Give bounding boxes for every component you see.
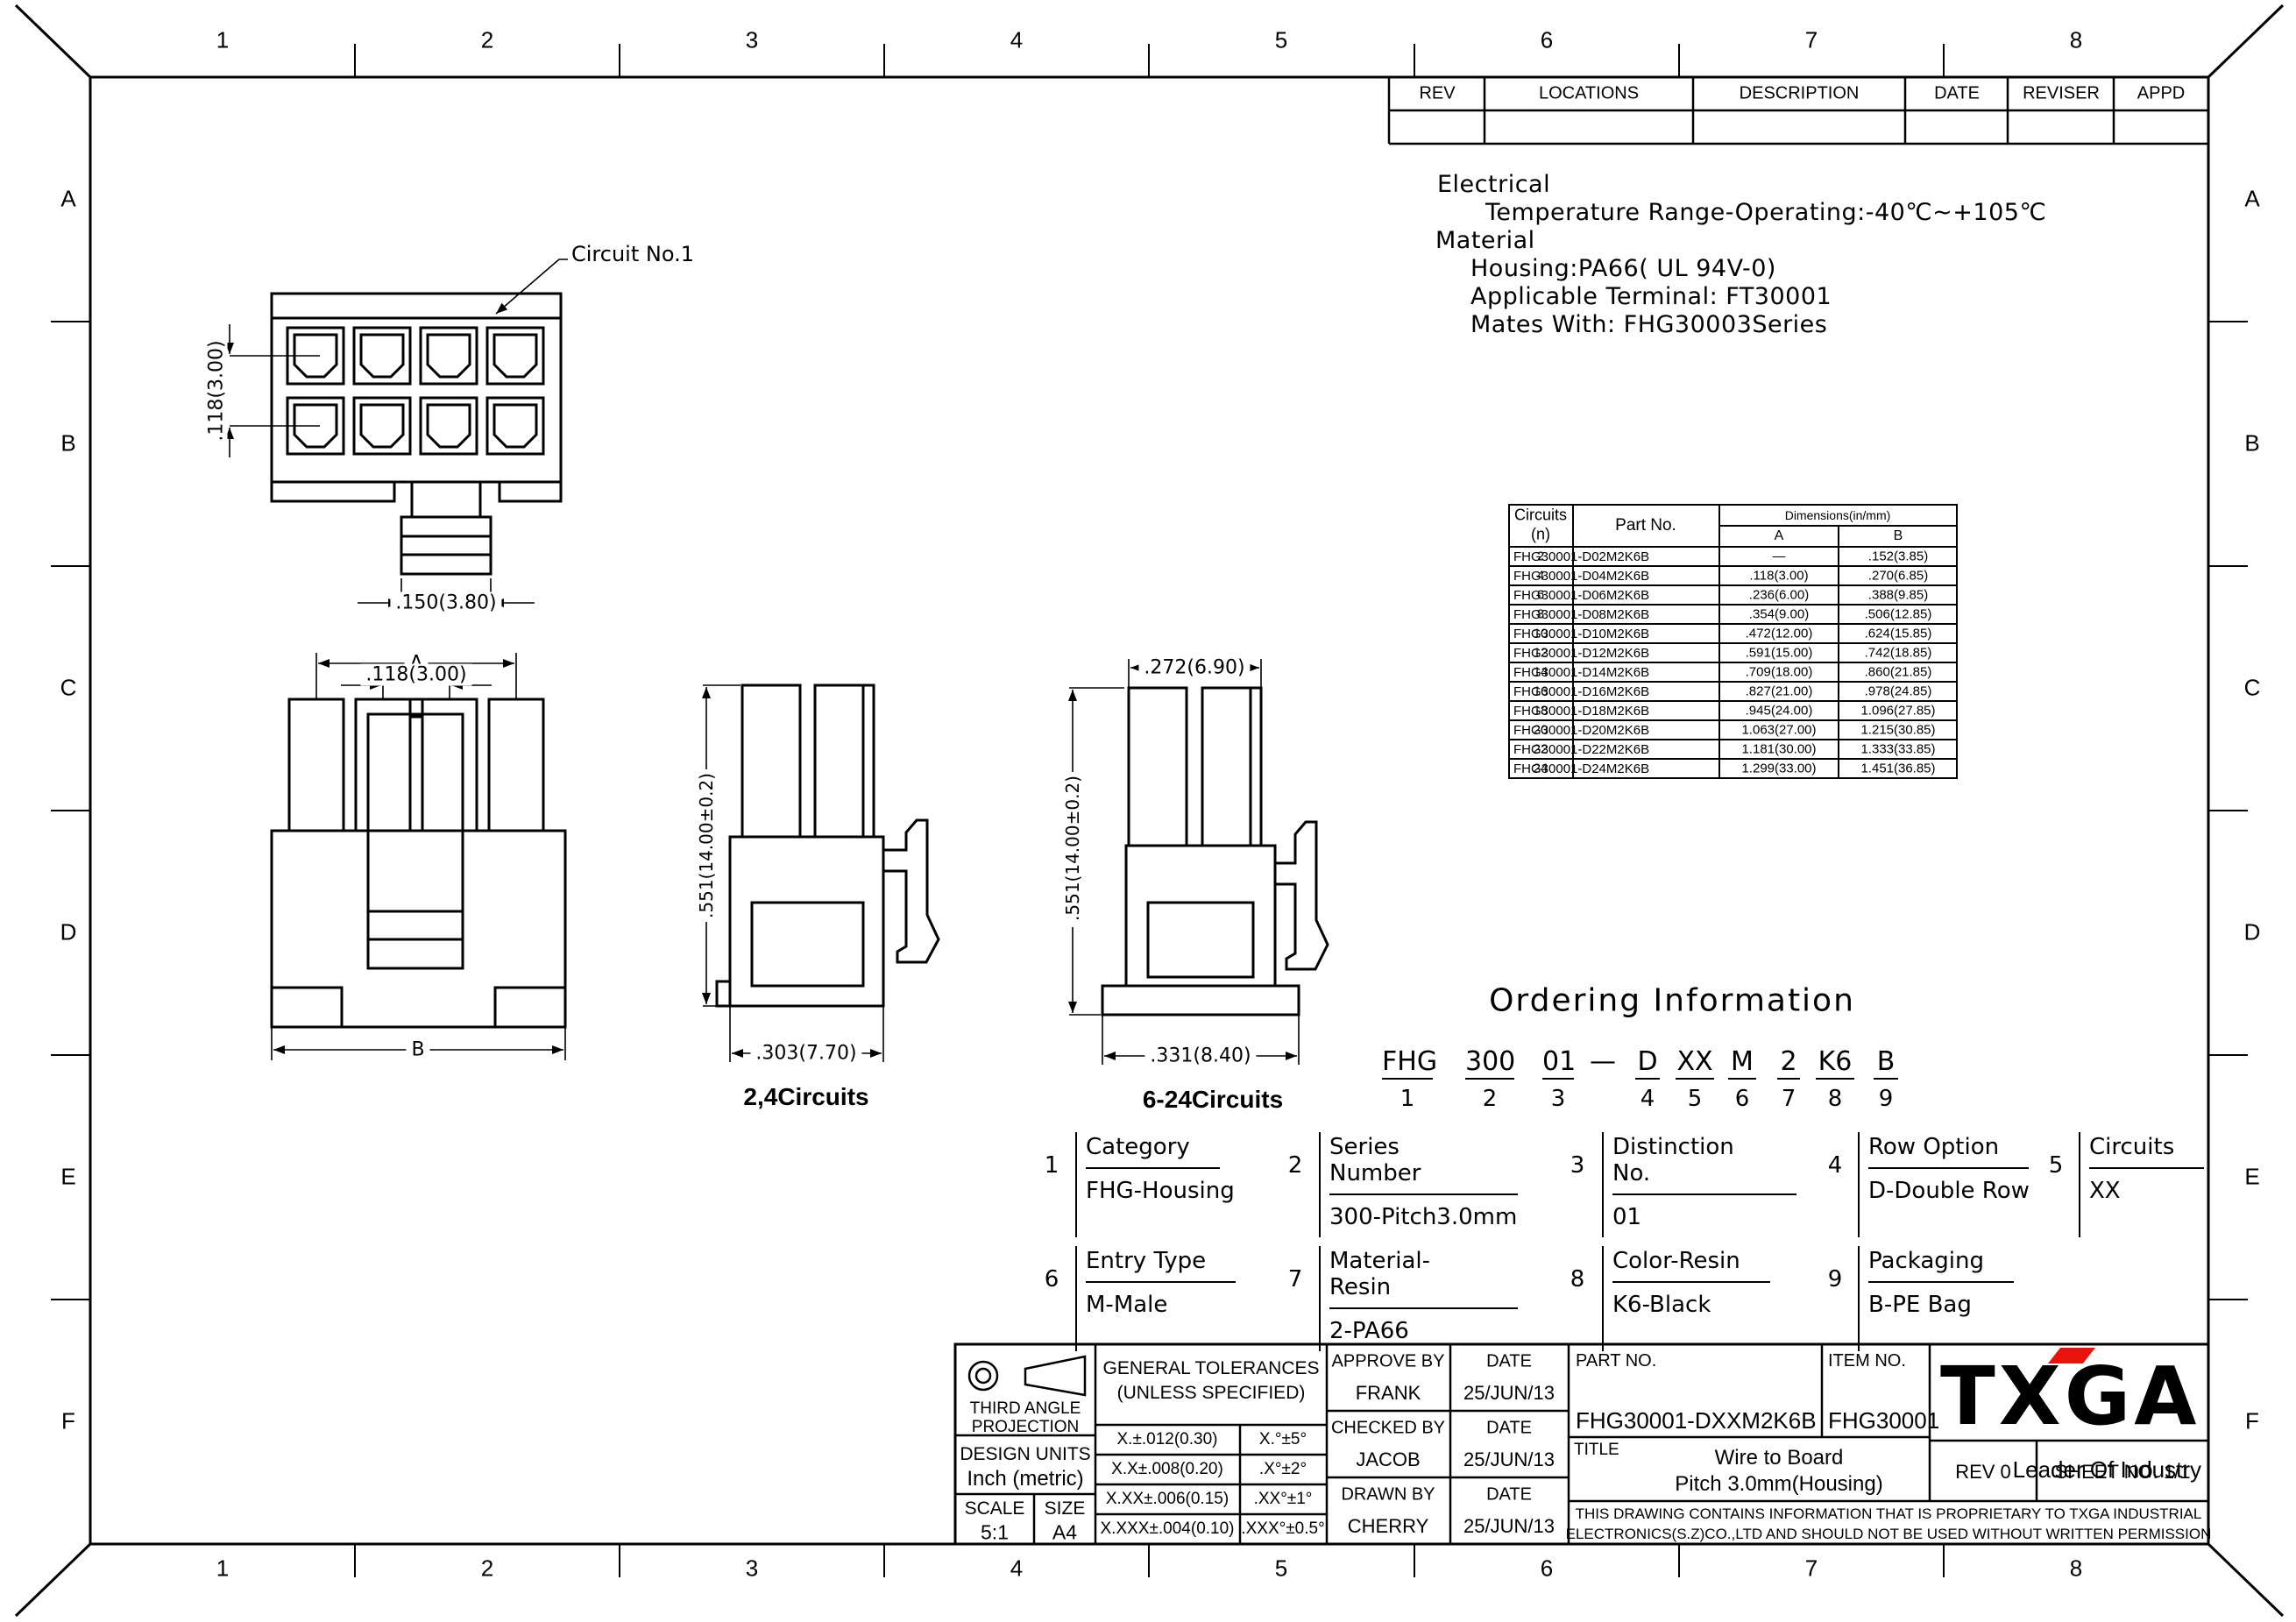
code-dash: — xyxy=(1590,1046,1616,1078)
ordering-item-label: Row Option xyxy=(1868,1132,2029,1169)
parts-cell-part: FHG30001-D12M2K6B xyxy=(1513,646,1649,661)
rev-header: REV xyxy=(1419,84,1455,104)
txga-slogan: Leader Of Industry xyxy=(1998,1456,2201,1484)
ordering-item-value: 300-Pitch3.0mm xyxy=(1329,1195,1518,1230)
txga-logo: TXGA xyxy=(1940,1356,2200,1437)
grid-row-label: F xyxy=(2245,1408,2259,1435)
parts-col-dims: Dimensions(in/mm) xyxy=(1785,508,1891,522)
parts-cell-part: FHG30001-D02M2K6B xyxy=(1513,549,1649,564)
parts-cell-b: 1.451(36.85) xyxy=(1860,761,1935,776)
parts-cell-part: FHG30001-D22M2K6B xyxy=(1513,742,1649,757)
parts-cell-a: .118(3.00) xyxy=(1749,569,1808,584)
grid-column-label: 2 xyxy=(481,1555,493,1583)
tolerance-angular: .XX°±1° xyxy=(1254,1490,1313,1509)
code-segment: XX xyxy=(1676,1046,1714,1080)
tolerance-angular: .X°±2° xyxy=(1259,1460,1307,1479)
ordering-item-no: 4 xyxy=(1828,1152,1843,1179)
face-latch-dim: .150(3.80) xyxy=(390,592,501,614)
tolerances-title: GENERAL TOLERANCES xyxy=(1102,1358,1319,1379)
ordering-item-label: Entry Type xyxy=(1086,1246,1236,1283)
design-units-label: DESIGN UNITS xyxy=(960,1444,1090,1465)
parts-cell-a: 1.299(33.00) xyxy=(1741,761,1816,776)
notes-electrical-heading: Electrical xyxy=(1437,171,1550,198)
drawn-by-name: CHERRY xyxy=(1348,1515,1429,1538)
item-no-label: ITEM NO. xyxy=(1828,1351,1906,1371)
code-digit: 1 xyxy=(1400,1086,1415,1112)
ordering-item-value: K6-Black xyxy=(1612,1283,1796,1318)
code-segment: 300 xyxy=(1465,1046,1514,1080)
grid-row-label: C xyxy=(2244,675,2261,702)
parts-cell-a: .591(15.00) xyxy=(1746,646,1813,661)
code-segment: K6 xyxy=(1816,1046,1854,1080)
grid-row-label: C xyxy=(60,675,77,702)
code-segment: D xyxy=(1635,1046,1660,1080)
parts-cell-a: 1.181(30.00) xyxy=(1741,742,1816,757)
ordering-item: Color-Resin K6-Black xyxy=(1602,1246,1796,1351)
ordering-item-value: FHG-Housing xyxy=(1086,1169,1239,1204)
date-label: DATE xyxy=(1486,1419,1532,1439)
checked-date: 25/JUN/13 xyxy=(1463,1448,1555,1471)
ordering-item: Packaging B-PE Bag xyxy=(1858,1246,2057,1351)
ordering-item: Category FHG-Housing xyxy=(1075,1132,1239,1237)
front-dim-b: B xyxy=(406,1039,429,1061)
parts-cell-a: .827(21.00) xyxy=(1746,684,1813,699)
grid-column-label: 4 xyxy=(1010,27,1023,54)
parts-col-b: B xyxy=(1894,528,1903,544)
ordering-item-label: Color-Resin xyxy=(1612,1246,1770,1283)
code-digit: 3 xyxy=(1551,1086,1566,1112)
parts-cell-part: FHG30001-D18M2K6B xyxy=(1513,704,1649,719)
parts-cell-b: .506(12.85) xyxy=(1865,607,1932,622)
part-no-label: PART NO. xyxy=(1576,1351,1656,1371)
checked-by-label: CHECKED BY xyxy=(1331,1419,1445,1439)
proprietary-notice-line1: THIS DRAWING CONTAINS INFORMATION THAT I… xyxy=(1576,1505,2202,1523)
ordering-item-value: B-PE Bag xyxy=(1868,1283,2057,1318)
notes-terminal: Applicable Terminal: FT30001 xyxy=(1470,283,1832,310)
parts-cell-a: .472(12.00) xyxy=(1746,627,1813,641)
code-segment: FHG xyxy=(1382,1046,1433,1080)
ordering-item-value: D-Double Row xyxy=(1868,1169,2057,1204)
design-units-value: Inch (metric) xyxy=(967,1467,1083,1491)
code-digit: 5 xyxy=(1688,1086,1703,1112)
ordering-item-label: Material-Resin xyxy=(1329,1246,1518,1309)
approve-date: 25/JUN/13 xyxy=(1463,1382,1555,1405)
parts-cell-part: FHG30001-D20M2K6B xyxy=(1513,723,1649,738)
date-label: DATE xyxy=(1486,1485,1532,1505)
parts-cell-part: FHG30001-D16M2K6B xyxy=(1513,684,1649,699)
ordering-item-value: 01 xyxy=(1612,1195,1796,1230)
notes-temperature: Temperature Range-Operating:-40℃~+105℃ xyxy=(1485,199,2046,226)
ordering-item: Circuits XX xyxy=(2079,1132,2203,1237)
approve-by-label: APPROVE BY xyxy=(1332,1352,1445,1372)
tolerance-linear: X.XXX±.004(0.10) xyxy=(1100,1519,1234,1539)
ordering-item: Distinction No. 01 xyxy=(1602,1132,1796,1237)
ordering-item-value: M-Male xyxy=(1086,1283,1239,1318)
parts-cell-b: .978(24.85) xyxy=(1865,684,1932,699)
part-no-value: FHG30001-DXXM2K6B xyxy=(1576,1407,1817,1434)
grid-row-label: F xyxy=(61,1408,75,1435)
code-segment: M xyxy=(1728,1046,1756,1080)
third-angle-label: THIRD ANGLE xyxy=(970,1399,1081,1419)
grid-column-label: 1 xyxy=(216,1555,229,1583)
ordering-item-no: 9 xyxy=(1828,1266,1843,1293)
ordering-item-label: Category xyxy=(1086,1132,1220,1169)
parts-cell-b: .388(9.85) xyxy=(1868,588,1928,603)
grid-column-label: 8 xyxy=(2070,1555,2082,1583)
parts-col-a: A xyxy=(1775,528,1784,544)
date-label: DATE xyxy=(1486,1352,1532,1372)
code-digit: 2 xyxy=(1483,1086,1498,1112)
parts-cell-a: .709(18.00) xyxy=(1746,665,1813,680)
ordering-item: Row Option D-Double Row xyxy=(1858,1132,2057,1237)
grid-row-label: B xyxy=(2244,430,2259,457)
grid-row-label: A xyxy=(60,186,75,213)
code-digit: 9 xyxy=(1879,1086,1894,1112)
ordering-item-label: Circuits xyxy=(2089,1132,2204,1169)
side24-height-dim: .551(14.00±0.2) xyxy=(696,769,717,922)
grid-column-label: 6 xyxy=(1541,27,1553,54)
parts-col-circuits-unit: (n) xyxy=(1531,526,1550,544)
ordering-item-label: Packaging xyxy=(1868,1246,2014,1283)
parts-cell-b: 1.215(30.85) xyxy=(1860,723,1935,738)
front-view-drawing xyxy=(272,653,565,1060)
code-digit: 7 xyxy=(1782,1086,1796,1112)
parts-cell-b: .624(15.85) xyxy=(1865,627,1932,641)
tolerance-linear: X.X±.008(0.20) xyxy=(1111,1460,1223,1479)
parts-cell-part: FHG30001-D10M2K6B xyxy=(1513,627,1649,641)
ordering-item: Entry Type M-Male xyxy=(1075,1246,1239,1351)
grid-column-label: 3 xyxy=(746,27,758,54)
grid-column-label: 6 xyxy=(1541,1555,1553,1583)
parts-cell-a: .354(9.00) xyxy=(1749,607,1809,622)
ordering-item-no: 7 xyxy=(1288,1266,1303,1293)
projection-label: PROJECTION xyxy=(972,1418,1079,1437)
code-digit: 4 xyxy=(1641,1086,1655,1112)
drawn-date: 25/JUN/13 xyxy=(1463,1515,1555,1538)
parts-cell-part: FHG30001-D24M2K6B xyxy=(1513,761,1649,776)
side624-top-dim: .272(6.90) xyxy=(1138,657,1250,679)
grid-column-label: 7 xyxy=(1805,27,1818,54)
ordering-item-no: 3 xyxy=(1570,1152,1585,1179)
side624-height-dim: .551(14.00±0.2) xyxy=(1062,772,1083,924)
grid-column-label: 2 xyxy=(481,27,493,54)
side624-caption: 6-24Circuits xyxy=(1143,1086,1283,1114)
grid-column-label: 3 xyxy=(746,1555,758,1583)
ordering-title: Ordering Information xyxy=(1489,983,1855,1019)
parts-col-part: Part No. xyxy=(1615,516,1676,535)
code-digit: 8 xyxy=(1828,1086,1843,1112)
grid-row-label: D xyxy=(2244,919,2261,946)
parts-cell-part: FHG30001-D08M2K6B xyxy=(1513,607,1649,622)
side24-caption: 2,4Circuits xyxy=(743,1083,868,1111)
rev-header: APPD xyxy=(2137,84,2185,104)
size-value: A4 xyxy=(1052,1521,1077,1545)
front-pitch-dim: .118(3.00) xyxy=(360,664,471,686)
rev-header: DATE xyxy=(1934,84,1980,104)
grid-column-label: 4 xyxy=(1010,1555,1023,1583)
tolerances-subtitle: (UNLESS SPECIFIED) xyxy=(1117,1383,1306,1404)
parts-cell-b: 1.333(33.85) xyxy=(1860,742,1935,757)
notes-housing: Housing:PA66( UL 94V-0) xyxy=(1470,255,1776,282)
rev-header: REVISER xyxy=(2023,84,2100,104)
tolerance-linear: X.±.012(0.30) xyxy=(1117,1430,1218,1449)
ordering-item-no: 8 xyxy=(1570,1266,1585,1293)
parts-cell-a: — xyxy=(1773,549,1786,564)
notes-mates: Mates With: FHG30003Series xyxy=(1470,311,1827,338)
drawing-title-line1: Wire to Board xyxy=(1715,1446,1844,1470)
ordering-item-label: Series Number xyxy=(1329,1132,1518,1195)
grid-column-label: 1 xyxy=(216,27,229,54)
side624-width-dim: .331(8.40) xyxy=(1144,1045,1256,1067)
parts-cell-b: 1.096(27.85) xyxy=(1860,704,1935,719)
ordering-item-no: 1 xyxy=(1045,1152,1059,1179)
side-view-624-drawing xyxy=(1069,659,1328,1065)
grid-column-label: 5 xyxy=(1275,27,1287,54)
rev-header: DESCRIPTION xyxy=(1740,84,1860,104)
face-view-drawing xyxy=(230,259,568,610)
circuit-no1-label: Circuit No.1 xyxy=(571,242,694,266)
item-no-value: FHG30001 xyxy=(1828,1407,1939,1434)
scale-value: 5:1 xyxy=(981,1521,1009,1545)
face-pitch-dim: .118(3.00) xyxy=(206,335,228,446)
title-label: TITLE xyxy=(1574,1441,1619,1460)
ordering-item-value: XX xyxy=(2089,1169,2203,1204)
tolerance-linear: X.XX±.006(0.15) xyxy=(1106,1490,1229,1509)
drawn-by-label: DRAWN BY xyxy=(1341,1485,1435,1505)
parts-cell-part: FHG30001-D06M2K6B xyxy=(1513,588,1649,603)
parts-cell-b: .152(3.85) xyxy=(1868,549,1928,564)
side-view-24-drawing xyxy=(703,685,939,1062)
drawing-title-line2: Pitch 3.0mm(Housing) xyxy=(1675,1472,1882,1497)
approve-by-name: FRANK xyxy=(1356,1382,1421,1405)
parts-cell-b: .742(18.85) xyxy=(1865,646,1932,661)
scale-label: SCALE xyxy=(965,1498,1025,1519)
grid-row-label: E xyxy=(2244,1164,2259,1191)
tolerance-angular: X.°±5° xyxy=(1259,1430,1307,1449)
grid-row-label: D xyxy=(60,919,77,946)
drawing-sheet: 1 2 3 4 5 6 7 8 1 2 3 4 5 6 7 8 A B C D … xyxy=(0,0,2296,1622)
parts-cell-part: FHG30001-D14M2K6B xyxy=(1513,665,1649,680)
proprietary-notice-line2: ELECTRONICS(S.Z)CO.,LTD AND SHOULD NOT B… xyxy=(1566,1526,2212,1543)
parts-cell-a: .945(24.00) xyxy=(1746,704,1813,719)
parts-cell-a: .236(6.00) xyxy=(1749,588,1809,603)
ordering-item-label: Distinction No. xyxy=(1612,1132,1796,1195)
grid-column-label: 8 xyxy=(2070,27,2082,54)
grid-row-label: A xyxy=(2244,186,2259,213)
ordering-item: Series Number 300-Pitch3.0mm xyxy=(1319,1132,1518,1237)
checked-by-name: JACOB xyxy=(1356,1448,1420,1471)
grid-column-label: 7 xyxy=(1805,1555,1818,1583)
parts-cell-a: 1.063(27.00) xyxy=(1741,723,1816,738)
ordering-item-no: 5 xyxy=(2049,1152,2064,1179)
code-segment: 2 xyxy=(1777,1046,1800,1080)
parts-cell-b: .270(6.85) xyxy=(1868,569,1928,584)
tolerance-angular: .XXX°±0.5° xyxy=(1241,1519,1324,1539)
parts-cell-part: FHG30001-D04M2K6B xyxy=(1513,569,1649,584)
parts-cell-b: .860(21.85) xyxy=(1865,665,1932,680)
side24-width-dim: .303(7.70) xyxy=(750,1043,861,1065)
grid-row-label: E xyxy=(60,1164,75,1191)
ordering-item-no: 2 xyxy=(1288,1152,1303,1179)
parts-col-circuits: Circuits xyxy=(1514,506,1567,525)
ordering-item-value: 2-PA66 xyxy=(1329,1309,1518,1344)
ordering-item: Material-Resin 2-PA66 xyxy=(1319,1246,1518,1351)
ordering-item-no: 6 xyxy=(1045,1266,1059,1293)
size-label: SIZE xyxy=(1045,1498,1086,1519)
grid-column-label: 5 xyxy=(1275,1555,1287,1583)
code-segment: B xyxy=(1874,1046,1898,1080)
rev-header: LOCATIONS xyxy=(1539,84,1639,104)
grid-row-label: B xyxy=(60,430,75,457)
code-digit: 6 xyxy=(1735,1086,1750,1112)
notes-material-heading: Material xyxy=(1435,227,1535,254)
code-segment: 01 xyxy=(1542,1046,1574,1080)
